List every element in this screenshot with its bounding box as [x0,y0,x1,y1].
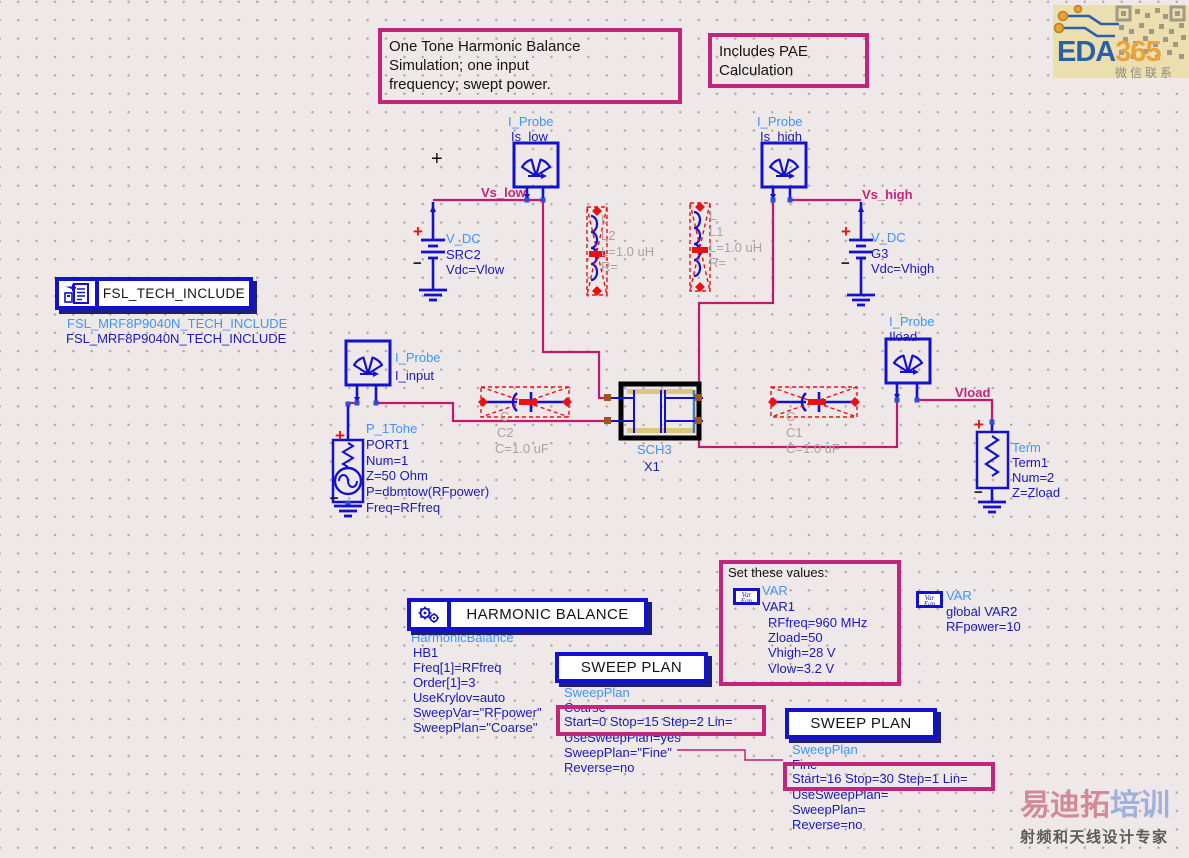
iprobe-iload-symbol[interactable] [886,339,930,403]
var-eqn-text: Eqn [736,599,757,605]
circuit-trace-icon [1055,6,1120,37]
l1-label[interactable]: L [709,209,716,222]
vdc-src2-symbol[interactable]: + − [413,202,447,300]
term1-type-label[interactable]: Term [1012,441,1041,454]
battery-icon [849,240,873,258]
fsl-include-line2[interactable]: FSL_MRF8P9040N_TECH_INCLUDE [66,332,286,345]
net-vs-low[interactable] [433,200,606,398]
l2-label[interactable]: L=1.0 uH [601,245,654,258]
c1-label[interactable]: C=1.0 uF [786,442,840,455]
capacitor-c1-symbol[interactable] [768,387,860,417]
c2-label[interactable]: C [500,410,509,423]
var1-param[interactable]: Zload=50 [768,631,823,644]
is-high-type-label[interactable]: I_Probe [757,115,803,128]
var1-param[interactable]: Vhigh=28 V [768,646,836,659]
var2-name-label[interactable]: global VAR2 [946,605,1017,618]
term1-minus-mark: − [974,484,983,501]
sweep2-param[interactable]: UseSweepPlan= [792,788,888,801]
x1-type-label[interactable]: SCH3 [637,443,672,456]
current-probe-icon [886,339,930,383]
sweep2-param[interactable]: SweepPlan= [792,803,865,816]
src2-name-label[interactable]: SRC2 [446,248,481,261]
subcircuit-x1-symbol[interactable] [604,384,703,438]
current-probe-icon [762,143,806,187]
hb-param[interactable]: Freq[1]=RFfreq [413,661,502,674]
sweep2-param[interactable]: Reverse=no [792,818,862,831]
note-line: Simulation; one input [389,56,678,75]
hb-type-label[interactable]: HarmonicBalance [411,631,514,644]
vdc-g3-symbol[interactable]: + − [841,202,875,305]
set-values-title: Set these values: [728,566,828,579]
fsl-tech-include-title: FSL_TECH_INCLUDE [99,281,249,306]
c2-label[interactable]: C2 [497,426,514,439]
l1-label[interactable]: R= [709,256,726,269]
var2-param[interactable]: RFpower=10 [946,620,1021,633]
port1-type-label[interactable]: P_1Tone [366,422,417,435]
schematic-canvas: + − + − [0,0,1189,858]
battery-icon [421,240,445,258]
c2-label[interactable]: C=1.0 uF [495,442,549,455]
note-one-tone[interactable]: One Tone Harmonic Balance Simulation; on… [378,28,682,104]
var-eqn-text: Eqn [919,602,940,608]
g3-plus-mark: + [841,222,851,241]
term1-param[interactable]: Num=2 [1012,471,1054,484]
include-icon [59,281,99,306]
current-probe-icon [514,143,558,187]
sweep1-param[interactable]: UseSweepPlan=yes [564,731,681,744]
harmonic-balance-icon [411,602,451,627]
note-line: One Tone Harmonic Balance [389,37,678,56]
src2-minus-mark: − [413,255,422,272]
src2-param-label[interactable]: Vdc=Vlow [446,263,504,276]
l2-label[interactable]: L2 [601,229,615,242]
var1-param[interactable]: RFfreq=960 MHz [768,616,867,629]
sweep-link-wire[interactable] [677,750,783,760]
term1-param[interactable]: Z=Zload [1012,486,1060,499]
var2-type-label[interactable]: VAR [946,589,972,602]
iprobe-i-input-symbol[interactable] [346,341,390,406]
net-label-vload[interactable]: Vload [955,386,990,399]
g3-minus-mark: − [841,255,850,272]
iload-type-label[interactable]: I_Probe [889,315,935,328]
l2-label[interactable]: L [601,213,608,226]
sweep2-name-label[interactable]: Fine [792,758,817,771]
g3-param-label[interactable]: Vdc=Vhigh [871,262,934,275]
net-label-vs-low[interactable]: Vs_low [481,186,526,199]
term-term1-symbol[interactable]: + − [974,415,1008,512]
port1-minus-mark: − [330,490,339,507]
iload-name-label[interactable]: Iload [889,330,917,343]
hb-param[interactable]: HB1 [413,646,438,659]
l2-label[interactable]: R= [601,260,618,273]
fsl-include-line1[interactable]: FSL_MRF8P9040N_TECH_INCLUDE [67,317,287,330]
sweep1-range[interactable]: Start=0 Stop=15 Step=2 Lin= [564,715,732,728]
sweep-plan-coarse-block[interactable]: SWEEP PLAN [555,652,708,683]
sweep1-name-label[interactable]: Coarse [564,701,606,714]
eda365-wordmark: EDA365 [1057,37,1161,67]
port1-param[interactable]: PORT1 [366,438,409,451]
l1-label[interactable]: L1 [709,225,723,238]
g3-name-label[interactable]: G3 [871,247,888,260]
c1-label[interactable]: C1 [786,426,803,439]
i-input-type-label[interactable]: I_Probe [395,351,441,364]
capacitor-c2-symbol[interactable] [478,387,572,417]
var1-param[interactable]: Vlow=3.2 V [768,662,834,675]
hb-param[interactable]: Order[1]=3 [413,676,476,689]
ground-icon [419,290,447,300]
port1-param[interactable]: Freq=RFfreq [366,501,440,514]
eda365-caption: 微信联系 [1115,64,1175,81]
port1-param[interactable]: Z=50 Ohm [366,469,428,482]
var1-type-label[interactable]: VAR [762,584,788,597]
net-output[interactable] [699,400,992,447]
sweep1-param[interactable]: SweepPlan="Fine" [564,746,672,759]
note-line: Calculation [719,61,865,80]
var1-name-label[interactable]: VAR1 [762,600,795,613]
sweep-plan-title: SWEEP PLAN [559,656,704,679]
ground-icon [847,295,875,305]
iprobe-is-high-symbol[interactable] [762,143,806,203]
x1-name-label[interactable]: X1 [644,460,660,473]
ground-icon [334,506,362,516]
fsl-tech-include-block[interactable]: FSL_TECH_INCLUDE [55,277,253,310]
port1-plus-mark: + [335,426,345,445]
watermark-subtitle: 射频和天线设计专家 [1020,826,1170,847]
var-eqn-icon[interactable]: Var Eqn [916,591,943,608]
watermark-wordmark: 易迪拓培训 [1020,790,1170,822]
sweep-plan-title: SWEEP PLAN [789,712,933,735]
eda365-logo: EDA365 微信联系 [1053,5,1189,78]
term1-plus-mark: + [974,415,984,434]
var-eqn-icon[interactable]: Var Eqn [733,588,760,605]
sweep2-range[interactable]: Start=16 Stop=30 Step=1 Lin= [792,772,968,785]
sweep1-type-label[interactable]: SweepPlan [564,686,630,699]
hb-param[interactable]: SweepPlan="Coarse" [413,721,538,734]
src2-plus-mark: + [413,222,423,241]
port1-param[interactable]: Num=1 [366,454,408,467]
sweep1-param[interactable]: Reverse=no [564,761,634,774]
p1tone-port1-symbol[interactable]: + − [330,402,363,517]
note-line: Includes PAE [719,42,865,61]
note-includes-pae[interactable]: Includes PAE Calculation [708,33,869,88]
note-line: frequency; swept power. [389,75,678,94]
hb-param[interactable]: SweepVar="RFpower" [413,706,542,719]
is-low-name-label[interactable]: Is_low [511,130,548,143]
sweep2-type-label[interactable]: SweepPlan [792,743,858,756]
i-input-name-label[interactable]: I_input [395,369,434,382]
port1-param[interactable]: P=dbmtow(RFpower) [366,485,489,498]
current-probe-icon [346,341,390,385]
src2-type-label[interactable]: V_DC [446,232,481,245]
l1-label[interactable]: L=1.0 uH [709,241,762,254]
is-low-type-label[interactable]: I_Probe [508,115,554,128]
net-label-vs-high[interactable]: Vs_high [862,188,913,201]
c1-label[interactable]: C [786,410,795,423]
inductor-l1-symbol[interactable] [690,202,710,292]
ground-icon [978,502,1006,512]
sweep-plan-fine-block[interactable]: SWEEP PLAN [785,708,937,739]
is-high-name-label[interactable]: Is_high [760,130,802,143]
harmonic-balance-block[interactable]: HARMONIC BALANCE [407,598,648,631]
g3-type-label[interactable]: V_DC [871,231,906,244]
training-watermark: 易迪拓培训 射频和天线设计专家 [1020,790,1170,847]
hb-param[interactable]: UseKrylov=auto [413,691,505,704]
term1-param[interactable]: Term1 [1012,456,1048,469]
node-plus-mark: + [431,149,443,169]
harmonic-balance-title: HARMONIC BALANCE [451,602,644,627]
